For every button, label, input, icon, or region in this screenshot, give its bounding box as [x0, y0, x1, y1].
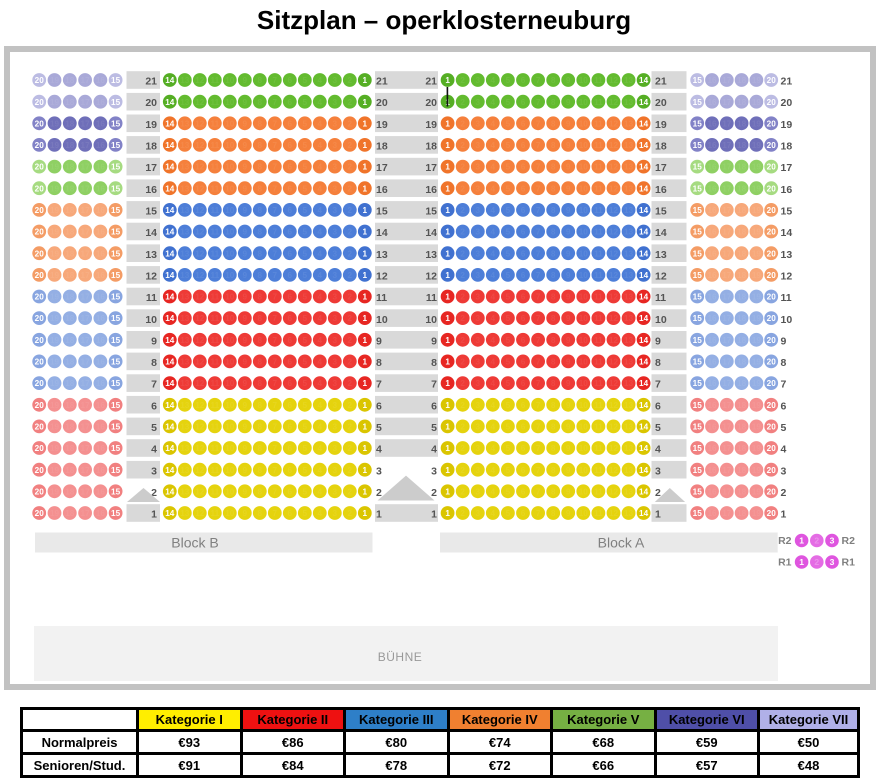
svg-text:14: 14 [165, 76, 175, 85]
svg-text:11: 11 [594, 119, 603, 128]
svg-text:10: 10 [225, 379, 235, 388]
svg-text:14: 14 [639, 509, 649, 518]
svg-text:7: 7 [536, 336, 541, 345]
svg-text:11: 11 [210, 358, 219, 367]
svg-text:16: 16 [96, 206, 106, 215]
svg-text:19: 19 [50, 509, 60, 518]
svg-text:3: 3 [476, 206, 481, 215]
svg-text:16: 16 [96, 119, 106, 128]
svg-text:11: 11 [210, 206, 219, 215]
svg-text:3: 3 [333, 76, 338, 85]
svg-text:13: 13 [624, 271, 634, 280]
svg-text:1: 1 [445, 206, 450, 215]
svg-text:14: 14 [639, 228, 649, 237]
svg-text:11: 11 [210, 487, 219, 496]
svg-text:19: 19 [50, 401, 60, 410]
svg-text:14: 14 [639, 336, 649, 345]
svg-text:5: 5 [506, 487, 511, 496]
svg-text:4: 4 [491, 314, 496, 323]
svg-text:1: 1 [445, 444, 450, 453]
svg-text:14: 14 [639, 314, 649, 323]
svg-text:11: 11 [594, 293, 603, 302]
svg-text:5: 5 [506, 141, 511, 150]
svg-text:2: 2 [348, 206, 353, 215]
svg-text:6: 6 [521, 401, 526, 410]
svg-text:20: 20 [35, 466, 45, 475]
svg-text:9: 9 [566, 358, 571, 367]
svg-text:12: 12 [195, 293, 205, 302]
svg-text:16: 16 [707, 401, 717, 410]
svg-text:17: 17 [722, 163, 732, 172]
svg-text:18: 18 [65, 314, 75, 323]
svg-text:11: 11 [594, 98, 603, 107]
svg-text:9: 9 [243, 466, 248, 475]
svg-text:2: 2 [460, 336, 465, 345]
svg-text:2: 2 [460, 423, 465, 432]
svg-text:9: 9 [431, 335, 437, 347]
svg-text:4: 4 [655, 444, 661, 456]
svg-text:4: 4 [491, 206, 496, 215]
svg-text:19: 19 [752, 76, 762, 85]
svg-text:8: 8 [551, 119, 556, 128]
svg-text:16: 16 [707, 98, 717, 107]
svg-text:10: 10 [225, 314, 235, 323]
svg-text:15: 15 [693, 336, 703, 345]
svg-text:14: 14 [639, 163, 649, 172]
svg-text:12: 12 [195, 206, 205, 215]
svg-text:18: 18 [737, 423, 747, 432]
svg-text:15: 15 [693, 358, 703, 367]
svg-text:14: 14 [165, 423, 175, 432]
svg-text:20: 20 [767, 98, 777, 107]
svg-text:2: 2 [348, 336, 353, 345]
svg-text:17: 17 [722, 271, 732, 280]
svg-text:2: 2 [348, 98, 353, 107]
svg-text:5: 5 [303, 487, 308, 496]
svg-text:12: 12 [609, 249, 619, 258]
svg-text:14: 14 [165, 119, 175, 128]
svg-text:7: 7 [273, 314, 278, 323]
svg-text:9: 9 [243, 444, 248, 453]
svg-text:14: 14 [639, 76, 649, 85]
svg-text:5: 5 [303, 314, 308, 323]
svg-text:2: 2 [460, 401, 465, 410]
svg-text:3: 3 [476, 141, 481, 150]
svg-text:6: 6 [521, 141, 526, 150]
svg-text:12: 12 [609, 76, 619, 85]
svg-text:8: 8 [551, 314, 556, 323]
svg-text:19: 19 [752, 444, 762, 453]
svg-text:19: 19 [752, 119, 762, 128]
svg-text:6: 6 [288, 509, 293, 518]
svg-text:12: 12 [609, 206, 619, 215]
svg-text:13: 13 [624, 98, 634, 107]
svg-text:4: 4 [491, 487, 496, 496]
svg-text:1: 1 [363, 487, 368, 496]
svg-text:5: 5 [303, 249, 308, 258]
svg-text:6: 6 [288, 336, 293, 345]
svg-text:4: 4 [431, 444, 437, 456]
svg-text:3: 3 [333, 141, 338, 150]
svg-text:2: 2 [348, 228, 353, 237]
svg-text:15: 15 [693, 466, 703, 475]
svg-text:20: 20 [35, 141, 45, 150]
svg-text:4: 4 [318, 293, 323, 302]
svg-text:12: 12 [609, 444, 619, 453]
svg-text:8: 8 [551, 141, 556, 150]
svg-text:14: 14 [425, 227, 437, 239]
svg-text:20: 20 [35, 271, 45, 280]
svg-text:9: 9 [243, 249, 248, 258]
svg-text:6: 6 [521, 358, 526, 367]
svg-text:18: 18 [65, 466, 75, 475]
svg-text:16: 16 [707, 423, 717, 432]
svg-text:1: 1 [363, 271, 368, 280]
svg-text:19: 19 [655, 119, 667, 131]
svg-text:20: 20 [767, 423, 777, 432]
svg-text:17: 17 [722, 358, 732, 367]
svg-text:1: 1 [363, 466, 368, 475]
svg-text:4: 4 [318, 206, 323, 215]
svg-text:13: 13 [624, 466, 634, 475]
svg-text:13: 13 [624, 249, 634, 258]
svg-text:14: 14 [165, 293, 175, 302]
svg-text:7: 7 [273, 487, 278, 496]
svg-text:7: 7 [273, 141, 278, 150]
svg-text:14: 14 [639, 466, 649, 475]
svg-text:7: 7 [536, 401, 541, 410]
svg-text:6: 6 [521, 98, 526, 107]
svg-text:12: 12 [195, 98, 205, 107]
svg-text:5: 5 [303, 336, 308, 345]
svg-text:3: 3 [476, 249, 481, 258]
svg-text:5: 5 [506, 466, 511, 475]
svg-text:17: 17 [722, 444, 732, 453]
svg-text:17: 17 [81, 314, 91, 323]
svg-text:2: 2 [348, 401, 353, 410]
svg-text:20: 20 [767, 293, 777, 302]
svg-text:14: 14 [165, 509, 175, 518]
svg-text:14: 14 [165, 184, 175, 193]
svg-text:16: 16 [96, 336, 106, 345]
svg-text:7: 7 [273, 163, 278, 172]
svg-text:9: 9 [566, 98, 571, 107]
svg-text:9: 9 [151, 335, 157, 347]
svg-text:7: 7 [431, 379, 437, 391]
svg-text:R2: R2 [778, 535, 792, 547]
svg-text:8: 8 [258, 98, 263, 107]
svg-text:17: 17 [81, 119, 91, 128]
svg-text:11: 11 [210, 76, 219, 85]
svg-text:7: 7 [536, 163, 541, 172]
svg-text:16: 16 [96, 184, 106, 193]
svg-text:5: 5 [506, 314, 511, 323]
svg-text:3: 3 [333, 423, 338, 432]
svg-text:2: 2 [348, 76, 353, 85]
svg-text:6: 6 [288, 293, 293, 302]
svg-text:9: 9 [566, 401, 571, 410]
svg-text:13: 13 [180, 141, 190, 150]
svg-text:12: 12 [195, 336, 205, 345]
svg-text:14: 14 [639, 444, 649, 453]
svg-text:4: 4 [318, 98, 323, 107]
svg-text:4: 4 [318, 249, 323, 258]
svg-text:12: 12 [195, 379, 205, 388]
svg-text:7: 7 [273, 466, 278, 475]
svg-text:5: 5 [303, 423, 308, 432]
svg-text:2: 2 [460, 358, 465, 367]
svg-text:12: 12 [609, 336, 619, 345]
svg-text:9: 9 [566, 184, 571, 193]
svg-text:9: 9 [243, 358, 248, 367]
svg-text:4: 4 [491, 293, 496, 302]
svg-text:4: 4 [318, 509, 323, 518]
svg-text:13: 13 [624, 379, 634, 388]
svg-text:15: 15 [111, 423, 121, 432]
svg-text:9: 9 [243, 141, 248, 150]
svg-text:17: 17 [425, 162, 437, 174]
svg-text:8: 8 [551, 228, 556, 237]
svg-text:21: 21 [655, 76, 667, 88]
svg-text:6: 6 [288, 401, 293, 410]
svg-text:10: 10 [579, 184, 589, 193]
svg-text:20: 20 [35, 228, 45, 237]
svg-text:15: 15 [376, 206, 388, 218]
svg-text:7: 7 [273, 358, 278, 367]
svg-text:19: 19 [50, 98, 60, 107]
svg-text:9: 9 [566, 293, 571, 302]
svg-text:15: 15 [693, 76, 703, 85]
svg-text:13: 13 [624, 401, 634, 410]
svg-text:4: 4 [318, 228, 323, 237]
svg-text:7: 7 [536, 444, 541, 453]
svg-text:19: 19 [752, 249, 762, 258]
svg-text:3: 3 [376, 465, 382, 477]
svg-text:4: 4 [318, 336, 323, 345]
svg-text:1: 1 [445, 249, 450, 258]
svg-text:10: 10 [225, 228, 235, 237]
svg-text:10: 10 [579, 163, 589, 172]
svg-text:8: 8 [551, 293, 556, 302]
svg-text:17: 17 [722, 141, 732, 150]
svg-text:5: 5 [506, 98, 511, 107]
svg-text:17: 17 [722, 76, 732, 85]
svg-text:3: 3 [476, 358, 481, 367]
svg-text:5: 5 [303, 271, 308, 280]
svg-text:11: 11 [594, 487, 603, 496]
svg-text:Block A: Block A [598, 535, 645, 551]
svg-text:11: 11 [210, 228, 219, 237]
svg-text:9: 9 [243, 76, 248, 85]
svg-text:6: 6 [521, 184, 526, 193]
svg-text:8: 8 [551, 76, 556, 85]
svg-text:18: 18 [65, 249, 75, 258]
svg-text:9: 9 [566, 119, 571, 128]
svg-text:11: 11 [210, 163, 219, 172]
svg-text:3: 3 [476, 271, 481, 280]
svg-text:18: 18 [65, 184, 75, 193]
svg-text:R2: R2 [842, 535, 856, 547]
svg-text:5: 5 [506, 206, 511, 215]
svg-text:8: 8 [551, 379, 556, 388]
svg-text:5: 5 [303, 358, 308, 367]
svg-text:10: 10 [225, 271, 235, 280]
svg-text:20: 20 [767, 163, 777, 172]
svg-text:9: 9 [566, 336, 571, 345]
svg-text:17: 17 [722, 423, 732, 432]
svg-text:18: 18 [65, 163, 75, 172]
svg-text:18: 18 [65, 141, 75, 150]
svg-text:17: 17 [722, 487, 732, 496]
svg-text:12: 12 [609, 163, 619, 172]
svg-text:19: 19 [50, 314, 60, 323]
svg-text:10: 10 [225, 401, 235, 410]
svg-text:5: 5 [431, 422, 437, 434]
svg-text:1: 1 [799, 536, 804, 546]
svg-text:12: 12 [609, 141, 619, 150]
svg-text:6: 6 [521, 444, 526, 453]
svg-text:5: 5 [376, 422, 382, 434]
svg-text:8: 8 [551, 401, 556, 410]
svg-text:10: 10 [579, 444, 589, 453]
svg-text:9: 9 [566, 141, 571, 150]
svg-text:10: 10 [579, 249, 589, 258]
svg-text:9: 9 [566, 76, 571, 85]
svg-text:12: 12 [195, 228, 205, 237]
svg-text:13: 13 [180, 76, 190, 85]
svg-text:10: 10 [579, 98, 589, 107]
svg-text:12: 12 [609, 509, 619, 518]
svg-text:15: 15 [425, 206, 437, 218]
svg-text:9: 9 [566, 228, 571, 237]
svg-text:20: 20 [767, 141, 777, 150]
svg-text:3: 3 [333, 271, 338, 280]
svg-text:7: 7 [536, 228, 541, 237]
svg-text:7: 7 [273, 336, 278, 345]
svg-text:2: 2 [348, 487, 353, 496]
svg-text:9: 9 [566, 466, 571, 475]
svg-text:6: 6 [521, 206, 526, 215]
svg-text:9: 9 [243, 184, 248, 193]
svg-text:3: 3 [476, 119, 481, 128]
svg-text:16: 16 [707, 249, 717, 258]
svg-text:17: 17 [722, 466, 732, 475]
svg-text:2: 2 [348, 141, 353, 150]
svg-text:18: 18 [65, 76, 75, 85]
svg-text:9: 9 [566, 314, 571, 323]
svg-text:14: 14 [639, 271, 649, 280]
svg-text:14: 14 [165, 163, 175, 172]
svg-text:9: 9 [243, 206, 248, 215]
svg-text:10: 10 [225, 206, 235, 215]
svg-text:Block B: Block B [171, 535, 218, 551]
svg-text:5: 5 [303, 379, 308, 388]
svg-text:8: 8 [258, 163, 263, 172]
svg-text:1: 1 [655, 509, 661, 521]
svg-text:20: 20 [35, 76, 45, 85]
svg-text:17: 17 [722, 184, 732, 193]
svg-text:3: 3 [151, 465, 157, 477]
svg-text:19: 19 [752, 379, 762, 388]
svg-text:2: 2 [460, 466, 465, 475]
svg-text:17: 17 [81, 509, 91, 518]
svg-text:2: 2 [348, 358, 353, 367]
svg-text:6: 6 [288, 184, 293, 193]
svg-text:6: 6 [288, 98, 293, 107]
svg-text:4: 4 [491, 423, 496, 432]
svg-text:21: 21 [376, 76, 388, 88]
svg-text:1: 1 [445, 141, 450, 150]
svg-text:16: 16 [707, 379, 717, 388]
svg-text:2: 2 [460, 487, 465, 496]
svg-text:2: 2 [460, 509, 465, 518]
svg-text:4: 4 [491, 119, 496, 128]
svg-text:7: 7 [273, 119, 278, 128]
svg-text:11: 11 [594, 423, 603, 432]
svg-text:10: 10 [579, 141, 589, 150]
svg-text:1: 1 [363, 379, 368, 388]
svg-text:10: 10 [579, 119, 589, 128]
svg-text:18: 18 [737, 466, 747, 475]
svg-text:8: 8 [258, 487, 263, 496]
svg-text:18: 18 [737, 76, 747, 85]
svg-text:3: 3 [333, 184, 338, 193]
svg-text:4: 4 [491, 509, 496, 518]
svg-text:13: 13 [624, 184, 634, 193]
svg-text:15: 15 [693, 228, 703, 237]
svg-text:13: 13 [781, 249, 793, 261]
svg-text:2: 2 [348, 271, 353, 280]
svg-text:5: 5 [303, 184, 308, 193]
svg-text:18: 18 [65, 119, 75, 128]
svg-text:14: 14 [639, 98, 649, 107]
svg-text:16: 16 [707, 271, 717, 280]
svg-text:7: 7 [151, 379, 157, 391]
svg-text:14: 14 [165, 228, 175, 237]
svg-text:17: 17 [655, 162, 667, 174]
svg-text:10: 10 [781, 314, 793, 326]
svg-text:3: 3 [476, 466, 481, 475]
svg-text:8: 8 [258, 76, 263, 85]
svg-text:17: 17 [81, 249, 91, 258]
svg-text:3: 3 [476, 487, 481, 496]
svg-text:4: 4 [318, 271, 323, 280]
svg-text:16: 16 [707, 444, 717, 453]
svg-text:16: 16 [96, 228, 106, 237]
svg-text:20: 20 [35, 509, 45, 518]
svg-text:6: 6 [521, 314, 526, 323]
svg-text:15: 15 [693, 163, 703, 172]
svg-text:8: 8 [258, 444, 263, 453]
svg-text:12: 12 [195, 401, 205, 410]
svg-text:20: 20 [767, 271, 777, 280]
svg-text:13: 13 [624, 444, 634, 453]
svg-text:8: 8 [258, 379, 263, 388]
svg-text:8: 8 [258, 249, 263, 258]
svg-text:11: 11 [210, 509, 219, 518]
svg-text:16: 16 [96, 76, 106, 85]
svg-text:6: 6 [655, 400, 661, 412]
svg-text:20: 20 [35, 314, 45, 323]
svg-text:10: 10 [225, 293, 235, 302]
svg-text:10: 10 [225, 184, 235, 193]
svg-text:16: 16 [707, 314, 717, 323]
svg-text:15: 15 [693, 379, 703, 388]
svg-text:18: 18 [65, 401, 75, 410]
svg-text:4: 4 [318, 444, 323, 453]
svg-text:15: 15 [111, 358, 121, 367]
svg-text:17: 17 [722, 314, 732, 323]
